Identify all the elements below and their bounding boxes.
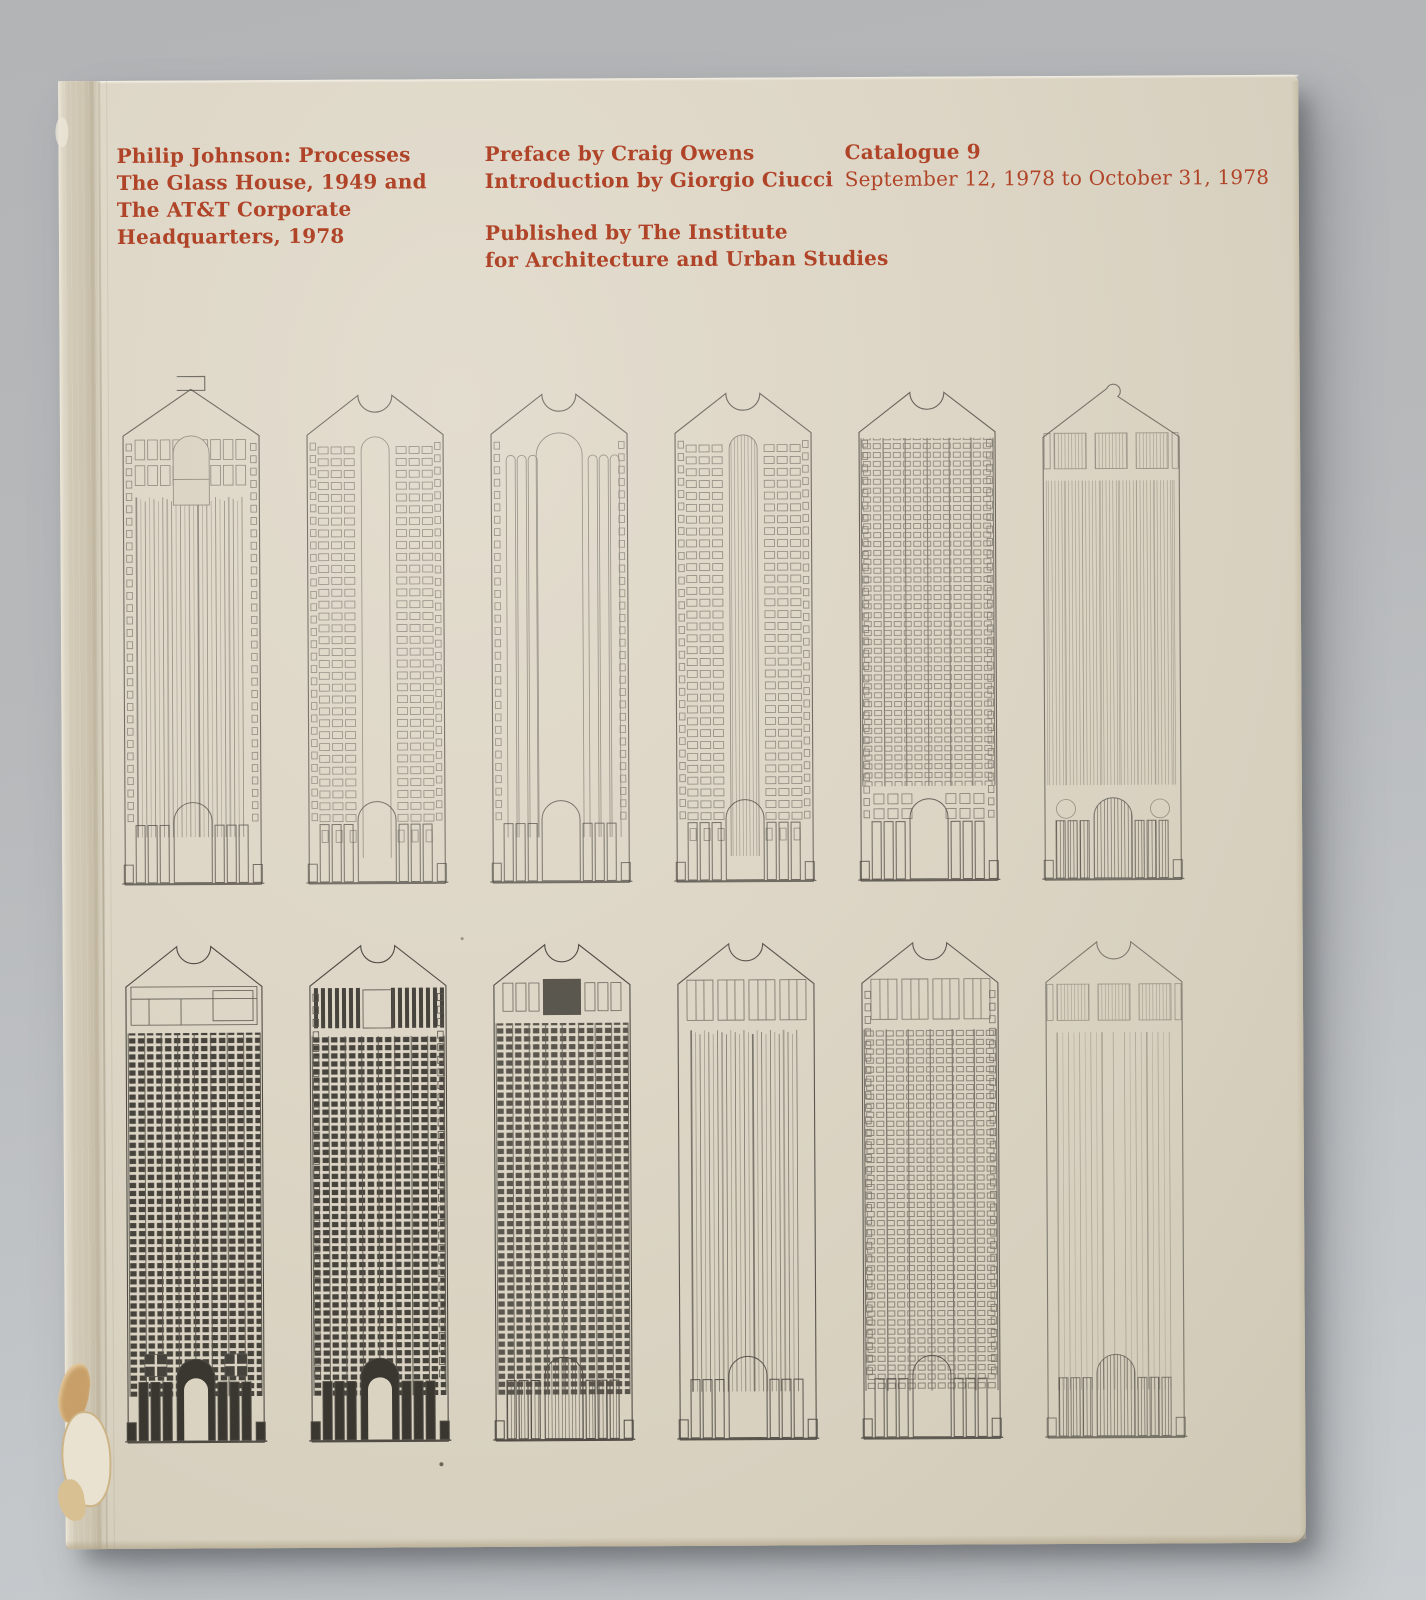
elevation-study-11	[855, 920, 1008, 1443]
photo-background: Philip Johnson: Processes The Glass Hous…	[0, 0, 1426, 1600]
title-line: Philip Johnson: Processes	[116, 141, 426, 170]
title-line: The AT&T Corporate	[117, 195, 427, 224]
book-cover: Philip Johnson: Processes The Glass Hous…	[58, 75, 1306, 1549]
elevation-study-7	[119, 924, 272, 1447]
catalogue-block: Catalogue 9 September 12, 1978 to Octobe…	[844, 137, 1269, 193]
elevation-row-bottom	[119, 919, 1192, 1447]
credits-block: Preface by Craig Owens Introduction by G…	[484, 139, 888, 274]
catalogue-number: Catalogue 9	[844, 137, 1269, 166]
title-block: Philip Johnson: Processes The Glass Hous…	[116, 141, 427, 251]
paper-speck	[461, 937, 464, 940]
paper-speck	[439, 1462, 443, 1466]
elevation-study-3	[484, 372, 637, 887]
elevation-study-4	[668, 371, 821, 886]
credit-line: Introduction by Giorgio Ciucci	[485, 166, 889, 195]
spine-wear-chip	[55, 117, 68, 147]
elevation-study-6	[1036, 369, 1189, 884]
elevation-study-5	[852, 370, 1005, 885]
elevation-study-12	[1039, 919, 1192, 1442]
publisher-line: for Architecture and Urban Studies	[485, 245, 889, 274]
elevation-row-top	[116, 369, 1189, 889]
elevation-study-1	[116, 374, 269, 889]
publisher-line: Published by The Institute	[485, 218, 889, 247]
page-block-edge	[1291, 81, 1306, 1539]
catalogue-dates: September 12, 1978 to October 31, 1978	[845, 164, 1270, 193]
elevation-study-8	[303, 923, 456, 1446]
title-line: The Glass House, 1949 and	[117, 168, 427, 197]
credit-line: Preface by Craig Owens	[484, 139, 888, 168]
elevation-study-9	[487, 922, 640, 1445]
spine-fold-line-2	[106, 81, 115, 1549]
title-line: Headquarters, 1978	[117, 222, 427, 251]
elevation-study-2	[300, 373, 453, 888]
elevation-study-10	[671, 921, 824, 1444]
